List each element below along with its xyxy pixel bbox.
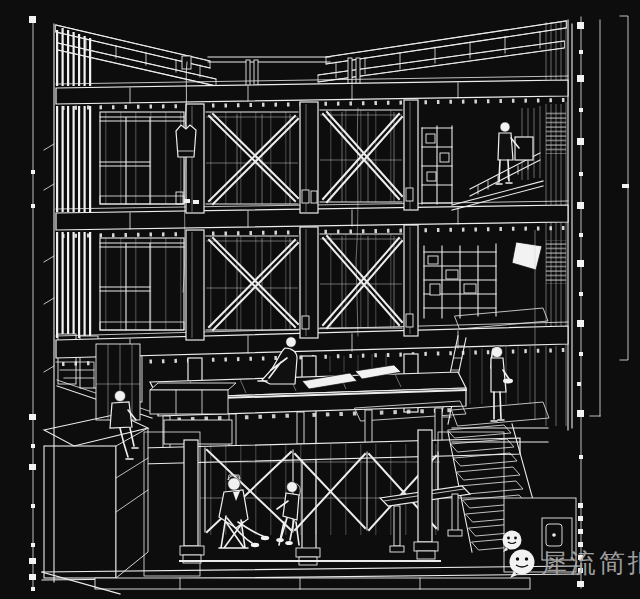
architectural-section-drawing: 犀流简报 [0,0,640,599]
window-bay-a2 [100,238,184,330]
watermark-text: 犀流简报 [541,548,640,578]
x-braced-bay-c2 [320,234,402,328]
screenshot-canvas: 犀流简报 [0,0,640,599]
window-bay-a3 [100,112,184,204]
dish [503,379,513,384]
x-braced-bay-b2 [206,236,298,330]
x-braced-bay-c3 [320,110,402,202]
x-braced-bay-b3 [206,112,298,204]
wall-box [515,137,533,160]
